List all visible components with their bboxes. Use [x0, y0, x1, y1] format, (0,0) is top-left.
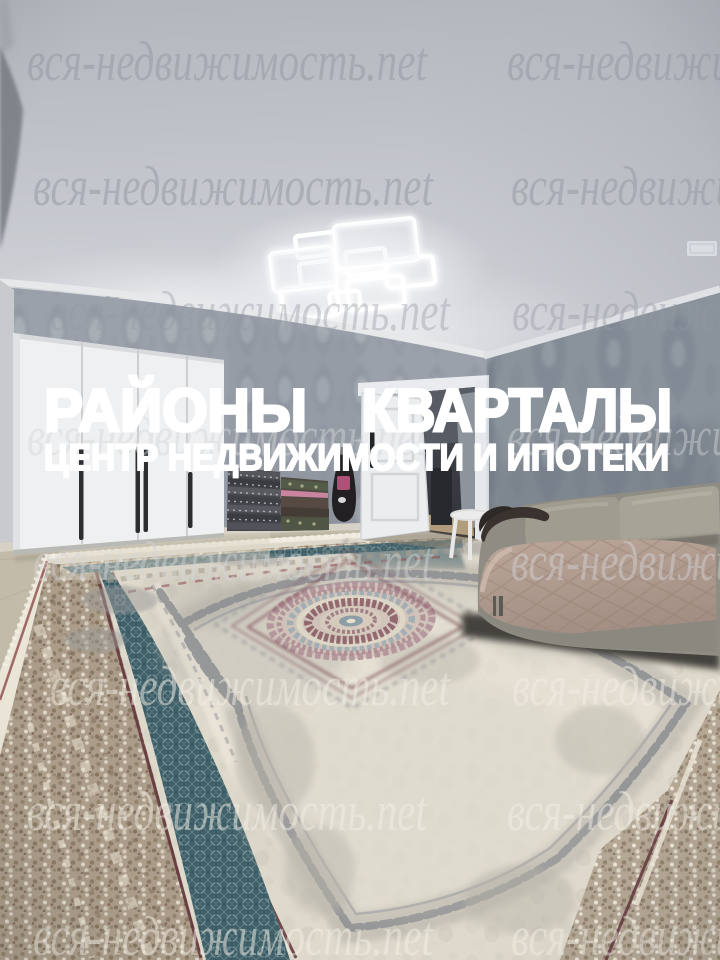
svg-text:ЦЕНТР НЕДВИЖИМОСТИ И ИПОТЕКИ: ЦЕНТР НЕДВИЖИМОСТИ И ИПОТЕКИ	[44, 437, 669, 478]
svg-text:РАЙОНЫ: РАЙОНЫ	[44, 377, 307, 444]
svg-text:КВАРТАЛЫ: КВАРТАЛЫ	[362, 377, 672, 444]
